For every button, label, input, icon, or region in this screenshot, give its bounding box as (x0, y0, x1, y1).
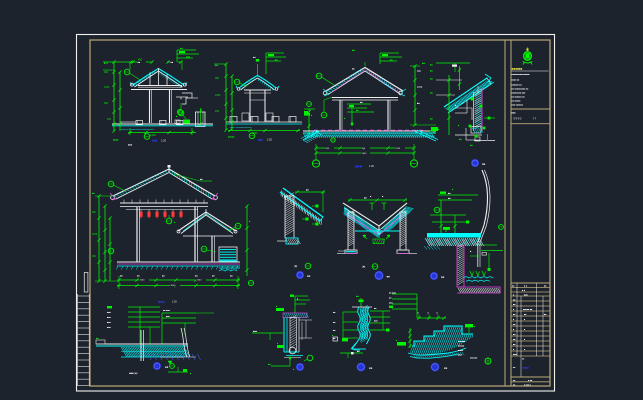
svg-text:1:20: 1:20 (369, 165, 374, 168)
svg-text:■■■■■: ■■■■■ (458, 345, 465, 348)
svg-text:■■■■■■■■ ■■■: ■■■■■■■■ ■■■ (512, 92, 527, 95)
svg-text:■■ ■■■■■■ ■■: ■■ ■■■■■■ ■■ (512, 96, 526, 99)
svg-text:2400: 2400 (215, 94, 221, 97)
svg-text:■■: ■■ (441, 276, 445, 279)
svg-text:450: 450 (215, 110, 220, 113)
svg-text:■■: ■■ (152, 138, 158, 143)
svg-text:3000: 3000 (171, 285, 177, 287)
svg-text:■■■: ■■■ (355, 164, 363, 169)
svg-text:■■: ■■ (444, 367, 448, 370)
svg-text:900: 900 (215, 77, 220, 80)
svg-text:■■ ■■■: ■■ ■■■ (163, 309, 171, 312)
svg-text:(■): (■) (294, 264, 297, 268)
svg-text:■■■■■: ■■■■■ (512, 67, 523, 71)
svg-text:( ): ( ) (533, 116, 536, 120)
svg-text:■■: ■■ (482, 163, 486, 166)
svg-text:■■■ ■■■■■■: ■■■ ■■■■■■ (512, 104, 524, 107)
svg-text:■■■: ■■■ (253, 330, 258, 333)
svg-text:■■■■■■: ■■■■■■ (470, 357, 478, 360)
svg-text:600: 600 (104, 102, 109, 105)
svg-text:■■■■■■■■■■■■■■■: ■■■■■■■■■■■■■■■ (512, 73, 531, 76)
svg-text:■■: ■■ (369, 367, 373, 370)
svg-text:■■■■■■ ■■: ■■■■■■ ■■ (512, 84, 523, 87)
svg-text:▪▪▪▪▪▪ ▪▪▪▪▪▪▪▪▪▪▪▪▪▪▪▪▪▪▪: ▪▪▪▪▪▪ ▪▪▪▪▪▪▪▪▪▪▪▪▪▪▪▪▪▪▪ (230, 126, 252, 129)
svg-text:■■■■■ ■■: ■■■■■ ■■ (523, 308, 533, 311)
svg-text:■■■■■: ■■■■■ (228, 136, 235, 139)
svg-text:■ ■■■ ■: ■ ■■■ ■ (524, 384, 531, 386)
svg-text:■■: ■■ (165, 366, 169, 369)
svg-text:2400: 2400 (150, 133, 156, 137)
svg-text:■■: ■■ (513, 384, 515, 386)
svg-text:■■: ■■ (258, 137, 263, 142)
svg-text:■■■■ ■■: ■■■■ ■■ (512, 79, 521, 82)
svg-text:■■■: ■■■ (158, 300, 165, 304)
svg-text:■■■ (■): ■■■ (■) (129, 372, 138, 375)
svg-text:■■■■: ■■■■ (458, 349, 464, 352)
svg-text:????: ???? (513, 117, 521, 121)
svg-text:1:20: 1:20 (172, 301, 177, 304)
svg-text:■■■■: ■■■■ (113, 139, 119, 142)
svg-text:■■ ■■■: ■■ ■■■ (389, 291, 397, 294)
svg-text:2700: 2700 (92, 234, 98, 236)
svg-text:150: 150 (107, 118, 112, 121)
svg-text:1500: 1500 (140, 279, 146, 281)
svg-text:■■■: ■■■ (512, 112, 517, 115)
svg-text:■■: ■■ (387, 276, 391, 279)
svg-text:■■■■■■: ■■■■■■ (458, 340, 466, 343)
svg-text:1:20: 1:20 (267, 139, 272, 142)
svg-text:3300: 3300 (362, 153, 368, 155)
svg-text:2700: 2700 (104, 86, 110, 89)
svg-text:900: 900 (104, 71, 109, 74)
svg-text:■50: ■50 (104, 62, 109, 65)
svg-text:(■): (■) (362, 265, 365, 269)
svg-text:■■■: ■■■ (186, 55, 191, 58)
svg-text:2700: 2700 (417, 87, 423, 89)
svg-text:1:20: 1:20 (161, 139, 167, 143)
svg-text:■■: ■■ (522, 359, 524, 361)
svg-text:1500: 1500 (197, 279, 203, 281)
svg-text:■■■: ■■■ (128, 144, 133, 147)
svg-text:■■■: ■■■ (523, 366, 529, 370)
svg-text:■■ ■■■■■■■■■ ■■: ■■ ■■■■■■■■■ ■■ (512, 88, 530, 91)
svg-text:■■ ■■■■■: ■■ ■■■■■ (512, 100, 522, 103)
svg-text:■■: ■■ (307, 275, 311, 278)
svg-text:▪▪▪▪▪▪▪▪▪ ▪▪▪▪▪▪▪▪▪▪▪▪▪▪▪▪▪▪▪▪: ▪▪▪▪▪▪▪▪▪ ▪▪▪▪▪▪▪▪▪▪▪▪▪▪▪▪▪▪▪▪▪▪▪▪▪▪▪▪▪ (121, 128, 154, 131)
